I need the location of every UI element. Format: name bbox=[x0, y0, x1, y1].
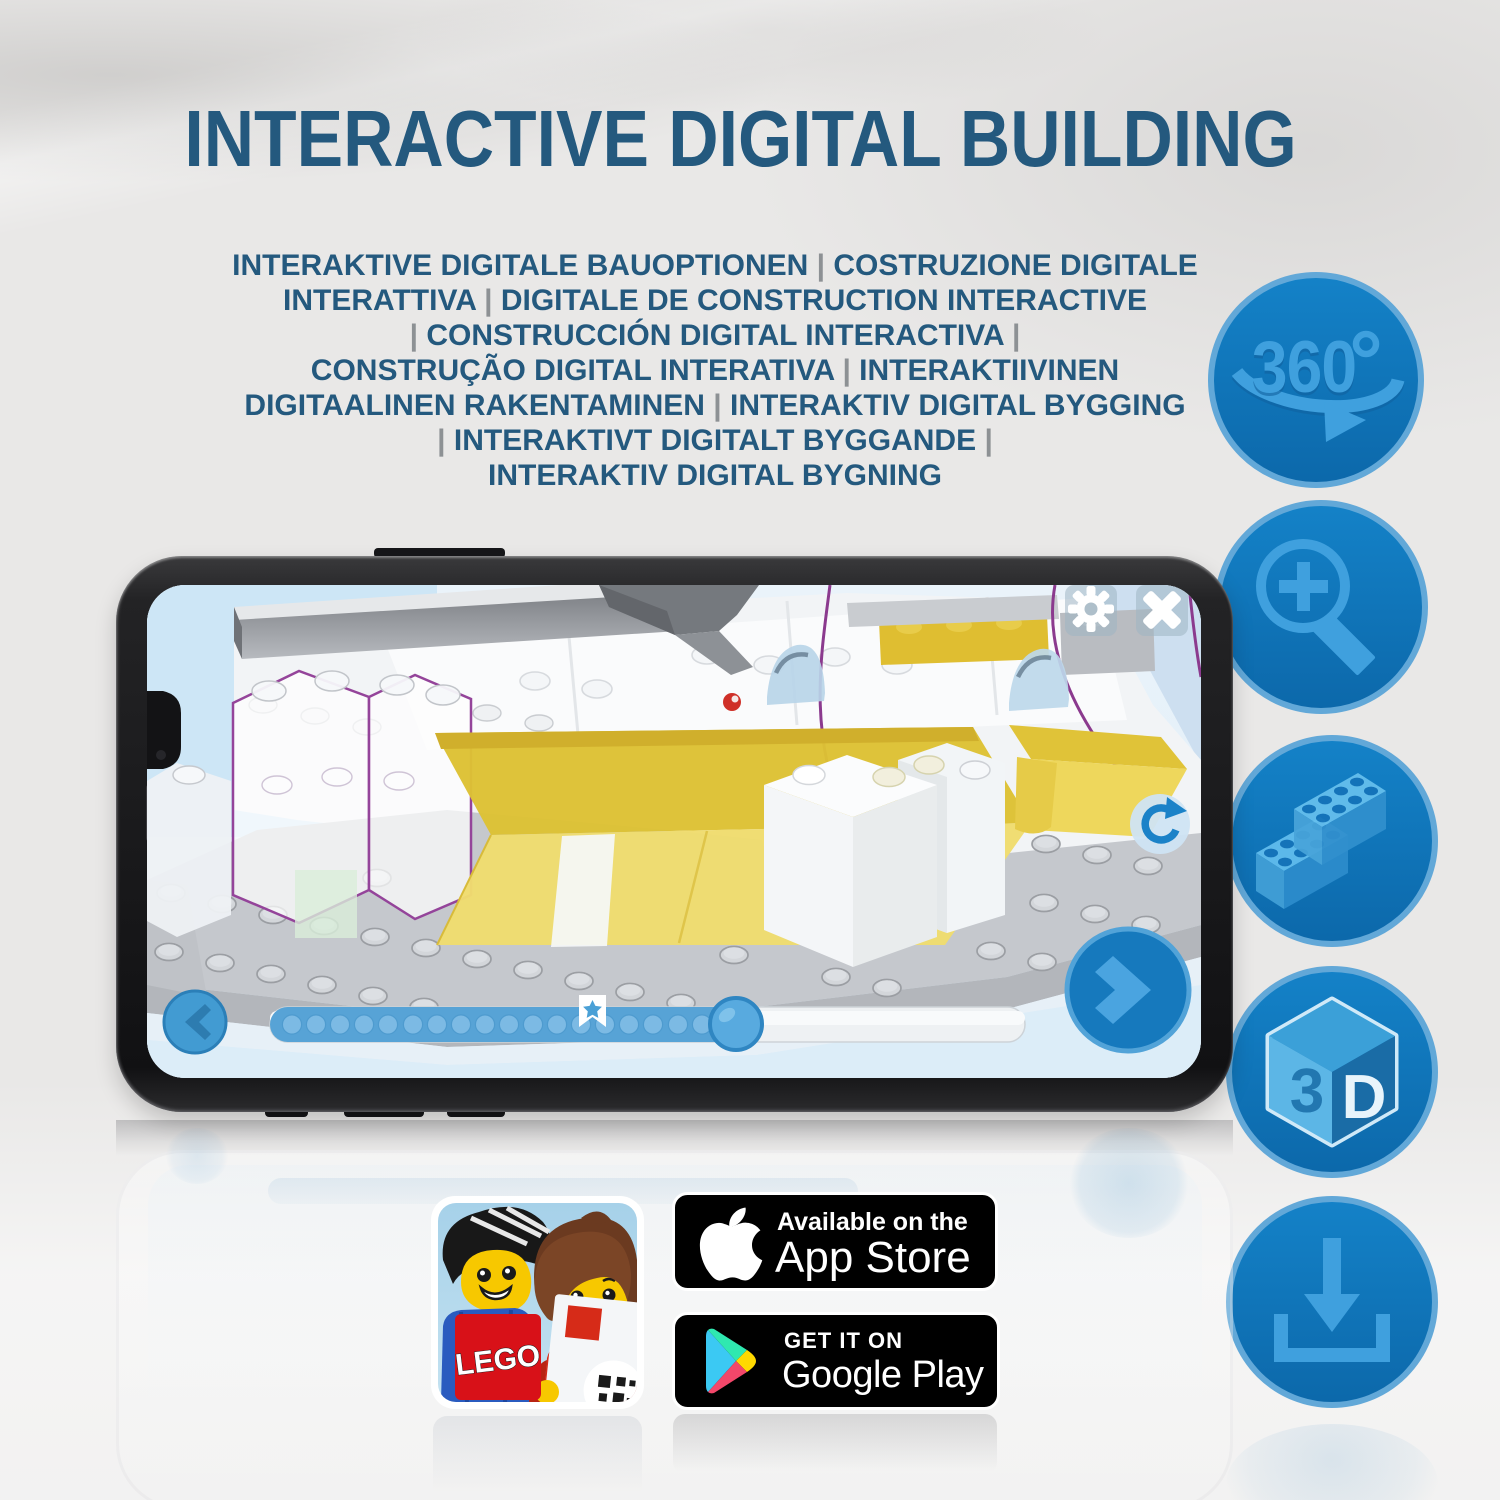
svg-text:D: D bbox=[1342, 1063, 1387, 1132]
svg-text:GET IT ON: GET IT ON bbox=[784, 1328, 903, 1353]
svg-text:360: 360 bbox=[1252, 326, 1357, 408]
svg-text:Google Play: Google Play bbox=[782, 1354, 984, 1396]
svg-text:Available on the: Available on the bbox=[777, 1208, 968, 1236]
svg-text:App Store: App Store bbox=[775, 1233, 971, 1282]
svg-text:3: 3 bbox=[1290, 1057, 1324, 1126]
